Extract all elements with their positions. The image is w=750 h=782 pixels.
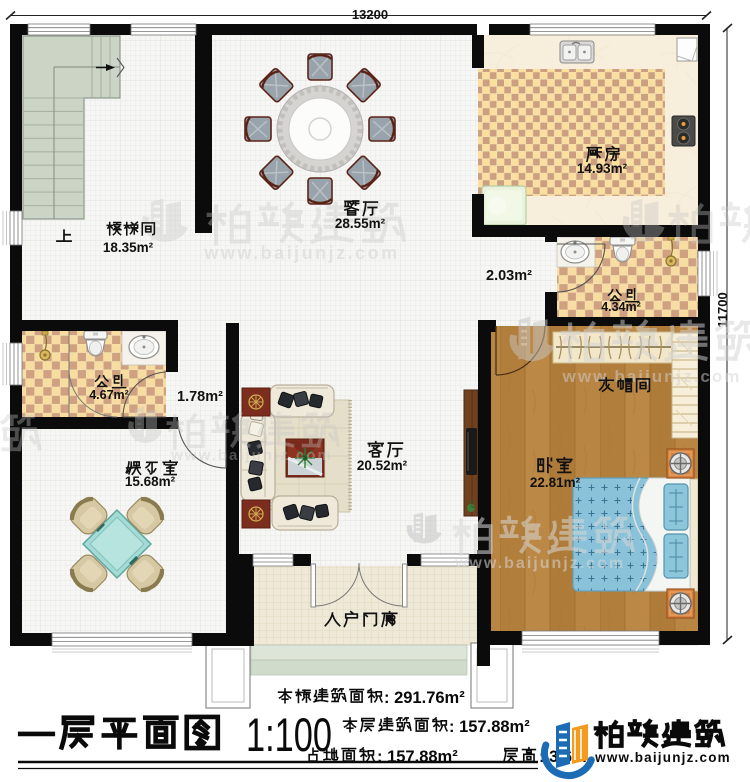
svg-text:www.baijunjz.com: www.baijunjz.com [170, 447, 332, 464]
svg-text:20.52m²: 20.52m² [357, 458, 408, 473]
svg-text:: 291.76m²: : 291.76m² [384, 689, 465, 707]
svg-text:www.baijunjz.com: www.baijunjz.com [594, 750, 731, 765]
svg-text:: 157.88m²: : 157.88m² [449, 718, 530, 736]
svg-text:1:100: 1:100 [246, 708, 332, 761]
svg-text:28.55m²: 28.55m² [335, 216, 386, 231]
svg-text:: 157.88m²: : 157.88m² [377, 748, 458, 766]
svg-text:22.81m²: 22.81m² [530, 475, 581, 490]
svg-text:14.93m²: 14.93m² [577, 161, 628, 176]
svg-text:4.34m²: 4.34m² [601, 300, 641, 314]
svg-text:15.68m²: 15.68m² [125, 474, 176, 489]
svg-text:4.67m²: 4.67m² [89, 388, 129, 402]
svg-text:1.78m²: 1.78m² [177, 389, 223, 405]
svg-text:www.baijunjz.com: www.baijunjz.com [454, 555, 625, 572]
svg-text:13200: 13200 [352, 7, 388, 22]
svg-text:2.03m²: 2.03m² [486, 268, 532, 284]
svg-text:www.baijunjz.com: www.baijunjz.com [203, 243, 399, 263]
svg-text:www.baijunjz.com: www.baijunjz.com [562, 367, 742, 386]
svg-text:18.35m²: 18.35m² [103, 240, 154, 255]
